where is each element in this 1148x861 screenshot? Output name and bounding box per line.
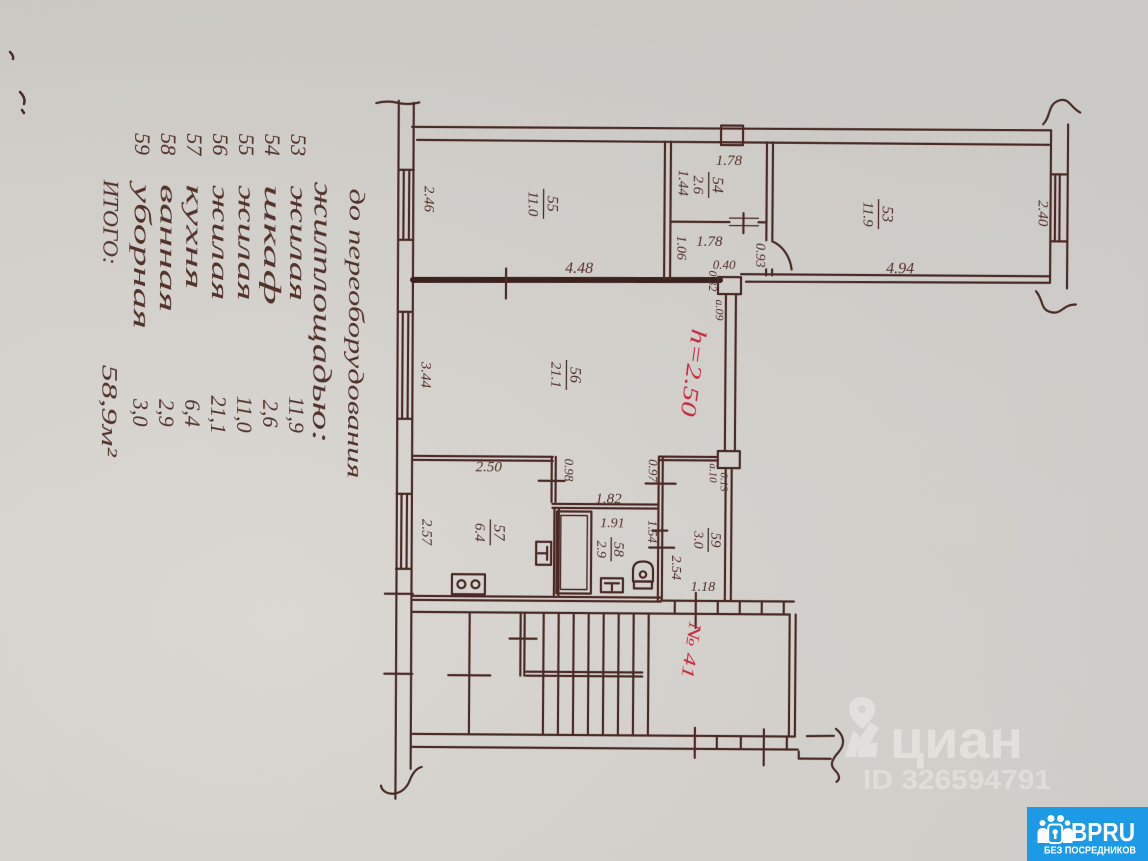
svg-text:кухня: кухня <box>180 184 207 289</box>
svg-text:a.10: a.10 <box>707 463 719 483</box>
svg-text:6,4: 6,4 <box>180 399 205 427</box>
svg-text:11.9: 11.9 <box>859 201 875 227</box>
svg-text:2,6: 2,6 <box>258 400 283 428</box>
svg-text:59: 59 <box>130 133 155 155</box>
svg-text:жилплощадью:: жилплощадью: <box>307 181 338 443</box>
svg-text:56: 56 <box>566 367 583 383</box>
svg-text:53: 53 <box>878 206 895 222</box>
svg-text:57: 57 <box>182 133 207 156</box>
svg-text:53: 53 <box>286 134 311 156</box>
svg-text:ванная: ванная <box>154 184 181 312</box>
svg-text:6.4: 6.4 <box>471 523 487 542</box>
svg-text:55: 55 <box>544 196 561 212</box>
svg-text:54: 54 <box>260 134 285 156</box>
svg-text:3.0: 3.0 <box>690 530 705 549</box>
svg-text:56: 56 <box>208 133 233 155</box>
svg-text:0.98: 0.98 <box>562 459 577 482</box>
svg-text:21,1: 21,1 <box>206 395 231 434</box>
svg-text:2.9: 2.9 <box>593 540 608 558</box>
svg-text:11,9: 11,9 <box>284 396 309 433</box>
svg-text:2.46: 2.46 <box>421 186 437 213</box>
svg-text:59: 59 <box>707 532 723 548</box>
svg-text:54: 54 <box>709 177 726 193</box>
svg-text:11,0: 11,0 <box>232 396 257 433</box>
svg-text:2,9: 2,9 <box>154 399 179 427</box>
svg-text:БЕЗ ПОСРЕДНИКОВ: БЕЗ ПОСРЕДНИКОВ <box>1044 846 1136 857</box>
svg-text:3,0: 3,0 <box>128 398 153 427</box>
svg-text:1.06: 1.06 <box>673 235 688 260</box>
svg-text:55: 55 <box>234 134 259 156</box>
svg-text:ИТОГО:: ИТОГО: <box>98 179 124 265</box>
svg-text:до переоборудования: до переоборудования <box>343 188 370 478</box>
svg-text:циан: циан <box>890 710 1023 770</box>
svg-text:жилая: жилая <box>232 185 259 301</box>
svg-text:4.94: 4.94 <box>886 260 914 277</box>
svg-text:2.57: 2.57 <box>418 519 434 547</box>
svg-text:11.0: 11.0 <box>524 191 540 217</box>
svg-text:шкаф: шкаф <box>258 185 285 305</box>
svg-text:2.40: 2.40 <box>1034 200 1050 227</box>
svg-text:3.44: 3.44 <box>417 361 433 389</box>
svg-text:1.54: 1.54 <box>645 520 660 543</box>
svg-text:1.78: 1.78 <box>696 234 723 250</box>
svg-text:2.6: 2.6 <box>690 175 706 194</box>
svg-text:2.50: 2.50 <box>476 459 503 475</box>
svg-text:2.54: 2.54 <box>668 555 683 580</box>
svg-text:уборная: уборная <box>128 180 155 329</box>
svg-text:21.1: 21.1 <box>547 362 563 388</box>
svg-text:1.44: 1.44 <box>675 170 691 197</box>
svg-text:жилая: жилая <box>206 184 233 300</box>
svg-text:58: 58 <box>156 133 181 155</box>
svg-text:1.18: 1.18 <box>691 580 716 595</box>
svg-text:BPRU: BPRU <box>1071 817 1135 847</box>
svg-text:0.93: 0.93 <box>752 243 767 268</box>
svg-text:0.32: 0.32 <box>706 270 720 291</box>
svg-text:0.13: 0.13 <box>718 472 730 492</box>
svg-text:57: 57 <box>490 524 507 541</box>
svg-text:ID 326594791: ID 326594791 <box>863 764 1051 795</box>
svg-text:4.48: 4.48 <box>565 260 593 277</box>
svg-text:1.91: 1.91 <box>600 516 625 531</box>
svg-text:58,9м²: 58,9м² <box>97 365 123 458</box>
svg-text:1.78: 1.78 <box>716 153 743 169</box>
svg-text:0.97: 0.97 <box>646 459 661 482</box>
svg-text:a.09: a.09 <box>713 299 727 320</box>
svg-text:жилая: жилая <box>284 185 311 301</box>
svg-text:58: 58 <box>610 542 626 558</box>
svg-text:1.82: 1.82 <box>595 491 622 507</box>
